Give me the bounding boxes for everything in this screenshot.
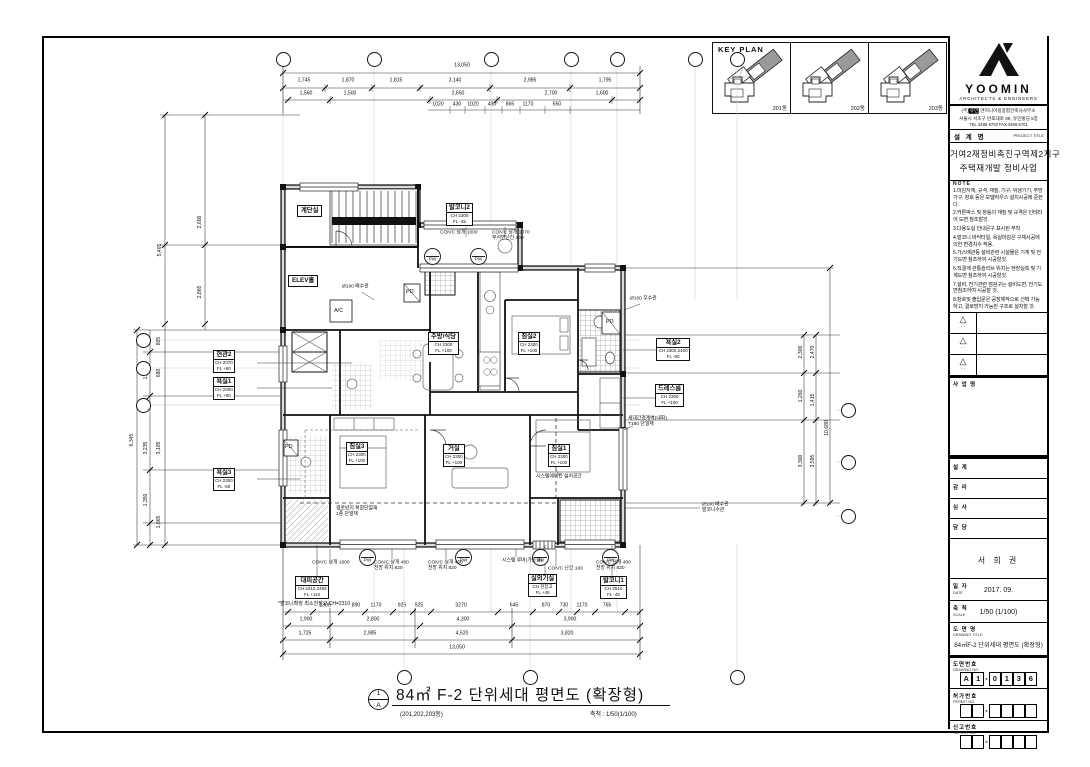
annotation: Ø100 우수관 [630,296,657,301]
room-tag-bed1: 침실1 CH 2300 FL +100 [548,444,570,467]
pd-label: PD [406,289,414,295]
grid-bubble [484,52,499,67]
room-tag-bed2: 침실2 CH 2300 FL +100 [518,332,540,355]
annotation: CON'C 난간 100 [548,566,583,571]
room-tag-balcony1: 발코니1 CH 2510 FL -45 [600,576,627,599]
room-tag-bed3: 침실3 CH 2300 FL +100 [346,442,368,465]
annotation: CON'C 날개 1070 무석면난간 200 [492,230,530,241]
grid-bubble [136,333,151,348]
grid-bubble [397,670,412,685]
room-tag-bath2: 욕실2 CH 2300,2400 FL -50 [656,338,690,361]
room-label-stair: 계단실 [297,205,322,217]
annotation: Ø100 배수관 [342,284,369,289]
room-tag-kitchen: 주방/식당 CH 2300 FL +100 [428,332,459,355]
annotation: CON'C 날개 400 천장 위치 820 [374,560,409,571]
grid-bubble [841,455,856,470]
grid-bubble [841,403,856,418]
stair-treads [330,189,418,245]
room-tag-bath3: 욕실3 CH 2300 FL -50 [213,468,235,491]
annotation: 시스템에어컨 설치공간 [536,474,582,479]
room-label-elevator-hall: ELEV홀 [288,275,318,287]
grid-bubble [841,509,856,524]
annotation: Ø100 배수관 발코니수관 [702,502,729,513]
grid-bubble [136,361,151,376]
grid-bubble [688,52,703,67]
pd-label: PD [285,444,293,450]
annotation: 시스템 루버(가동형) [502,558,542,563]
room-tag-living: 거실 CH 2300 FL +100 [443,444,465,467]
annotation: CON'C 날개 1000 [440,230,478,235]
annotation: CON'C 날개 400 천장 위치 820 [428,560,463,571]
grid-bubble [564,52,579,67]
grid-bubble [276,52,291,67]
annotation: CON'C 날개 1600 [312,560,350,565]
pd-label: PD [606,319,614,325]
room-tag-ac-outdoor: 실외기실 CH 천장고 FL +45 [528,574,557,597]
window-tag: PW [424,248,441,265]
annotation: 세대간경계벽(내화) T180 단열재 [628,416,667,427]
room-tag-refuge: 대피공간 CH 2312,2456 FL +110 [295,576,329,599]
floor-plan-svg [0,0,1090,767]
room-tag-dressroom: 드레스룸 CH 2300 FL +100 [655,384,684,407]
drawing-sheet-page: KEY PLAN 201동 202동 [0,0,1090,767]
grid-bubble [610,52,625,67]
annotation: CON'C 날개 400 천장 위치 820 [596,560,631,571]
grid-bubble [730,52,745,67]
grid-bubble [730,670,745,685]
room-tag-entry2: 현관2 CH 2070 FL +50 [213,350,235,373]
grid-bubble [367,52,382,67]
grid-bubble [523,670,538,685]
room-tag-bath1: 욕실1 CH 2300 FL +50 [213,377,235,400]
grid-bubble [136,398,151,413]
annotation: 결로방지 복합단열재 1종 단열재 [336,506,377,517]
balcony-ceiling-note: *발코니확장 최소천장고 CH=2310 [278,600,350,607]
ac-label: A/C [334,308,343,314]
room-tag-balcony2: 발코니2 CH 2300 FL -45 [446,203,473,226]
window-tag: PW [470,248,487,265]
